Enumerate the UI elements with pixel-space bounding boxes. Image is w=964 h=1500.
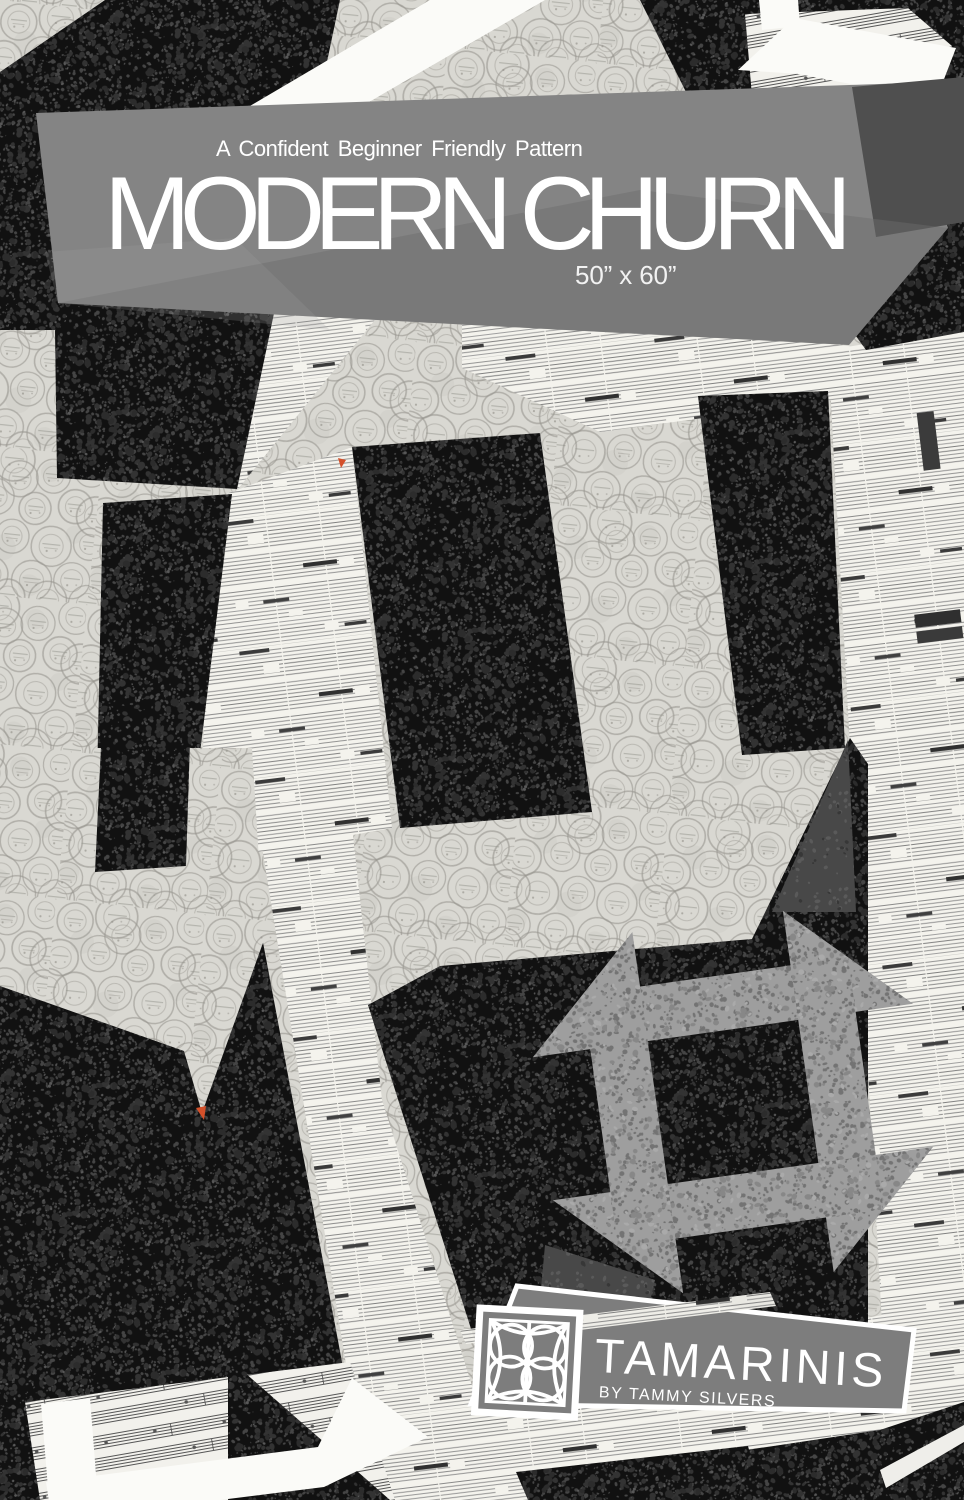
svg-text:MODERN CHURN: MODERN CHURN [104, 156, 852, 272]
svg-text:50” x 60”: 50” x 60” [575, 260, 677, 290]
